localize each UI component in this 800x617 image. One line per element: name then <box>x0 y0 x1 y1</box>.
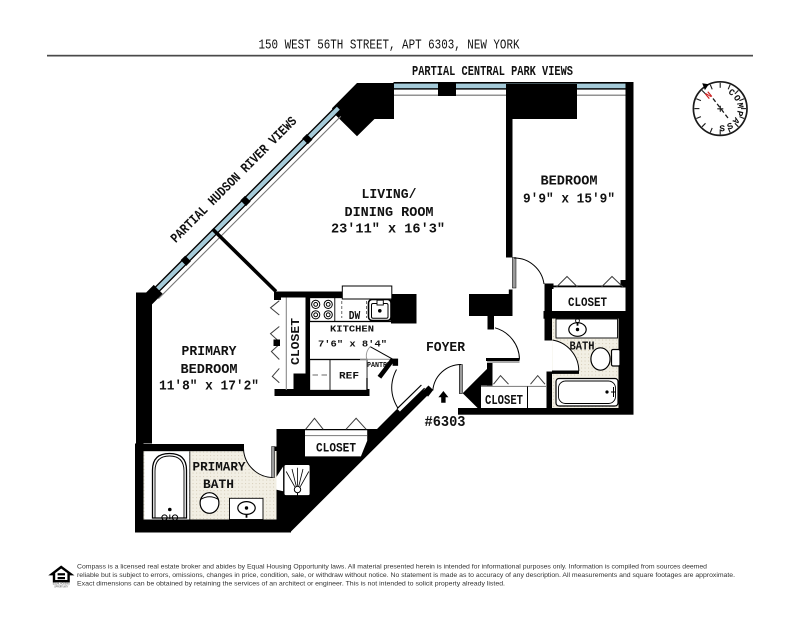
svg-text:CLOSET: CLOSET <box>568 295 607 310</box>
svg-text:23'11" x 16'3": 23'11" x 16'3" <box>331 222 445 238</box>
svg-text:7'6" x 8'4": 7'6" x 8'4" <box>318 339 387 350</box>
svg-text:KITCHEN: KITCHEN <box>330 324 374 335</box>
svg-text:Compass is a licensed real est: Compass is a licensed real estate broker… <box>77 564 708 571</box>
svg-text:CLOSET: CLOSET <box>290 318 303 365</box>
svg-text:Exact dimensions can be obtain: Exact dimensions can be obtained by reta… <box>77 581 505 588</box>
svg-text:reliable but is subject to err: reliable but is subject to errors, omiss… <box>77 572 735 579</box>
svg-text:BATH: BATH <box>570 341 595 354</box>
svg-text:FOYER: FOYER <box>426 341 466 356</box>
svg-text:CLOSET: CLOSET <box>485 394 523 409</box>
svg-text:BATH: BATH <box>203 478 234 492</box>
svg-text:LIVING/: LIVING/ <box>362 187 417 203</box>
svg-text:REF: REF <box>339 371 359 383</box>
svg-text:PRIMARY: PRIMARY <box>182 344 238 360</box>
svg-text:11'8" x 17'2": 11'8" x 17'2" <box>159 379 259 395</box>
svg-text:CLOSET: CLOSET <box>316 441 356 456</box>
svg-text:PRIMARY: PRIMARY <box>193 461 246 475</box>
svg-text:#6303: #6303 <box>425 414 466 431</box>
svg-text:150 WEST 56TH STREET, APT 6303: 150 WEST 56TH STREET, APT 6303, NEW YORK <box>259 39 521 54</box>
svg-text:DINING ROOM: DINING ROOM <box>345 205 434 221</box>
svg-text:OPPORTUNITY: OPPORTUNITY <box>54 585 68 589</box>
svg-text:BEDROOM: BEDROOM <box>541 174 598 190</box>
svg-text:9'9" x 15'9": 9'9" x 15'9" <box>523 192 615 208</box>
svg-text:PARTIAL CENTRAL PARK VIEWS: PARTIAL CENTRAL PARK VIEWS <box>412 65 573 80</box>
svg-text:BEDROOM: BEDROOM <box>181 362 238 378</box>
svg-text:DW: DW <box>349 309 361 323</box>
